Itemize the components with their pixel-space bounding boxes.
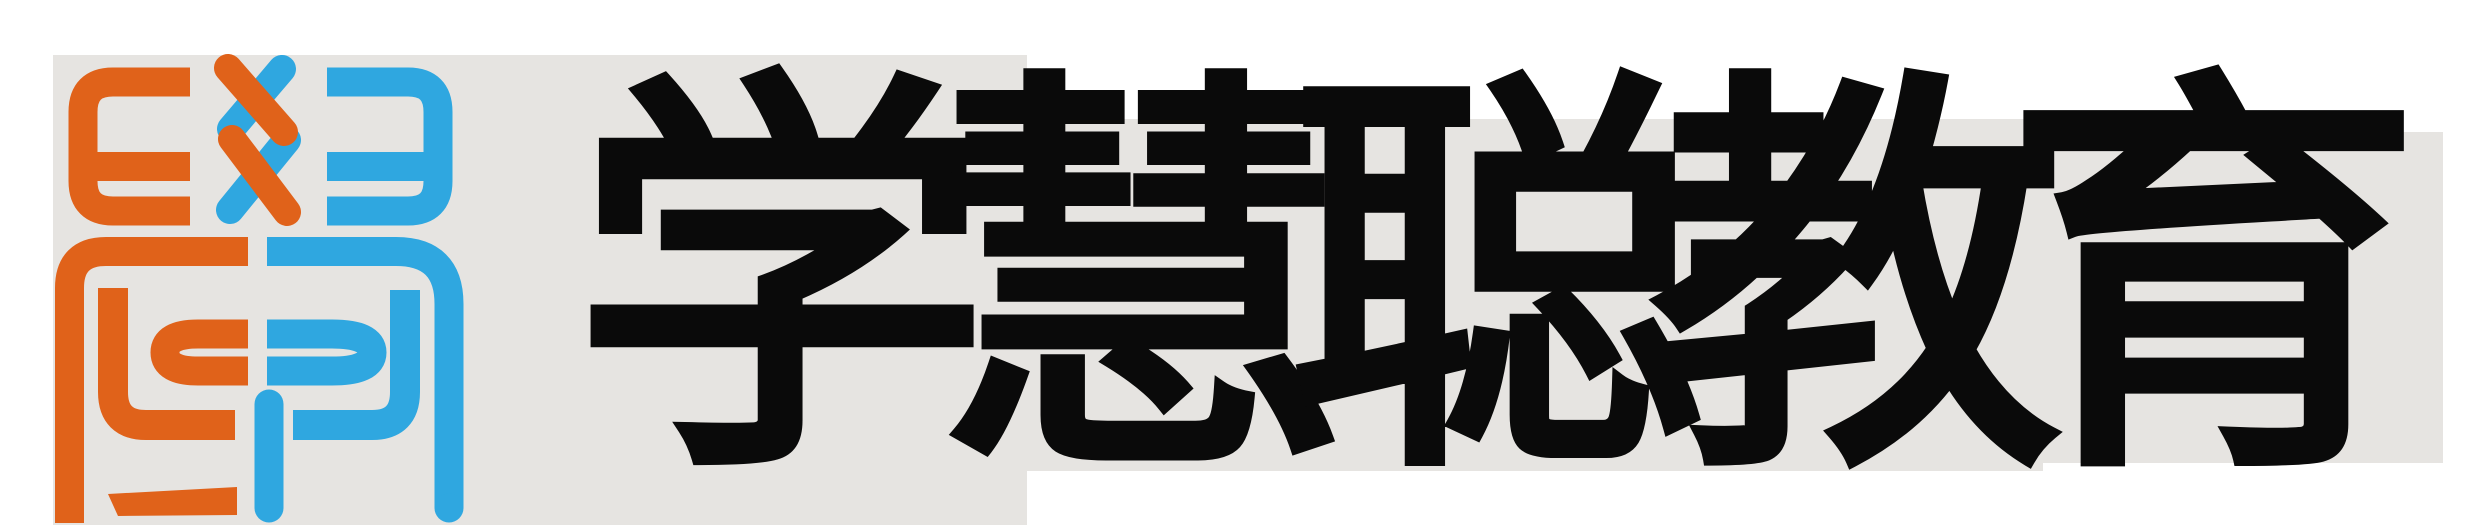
logo-e-bracket	[83, 82, 190, 211]
logo-reverse-e-bracket	[327, 82, 438, 211]
xuehuicong-logo-mark-icon	[0, 0, 560, 531]
logo-inner-blue-bowl	[267, 334, 372, 371]
logo-enclosure-blue-rounded-tip	[435, 494, 464, 523]
logo-inner-orange-baseline-bar	[108, 487, 237, 516]
logo-enclosure-orange-bracket	[70, 252, 249, 524]
logo-banner: 学慧聪教育	[0, 0, 2489, 531]
logo-inner-orange-c	[165, 334, 248, 371]
brand-name-text: 学慧聪教育	[572, 92, 2482, 492]
